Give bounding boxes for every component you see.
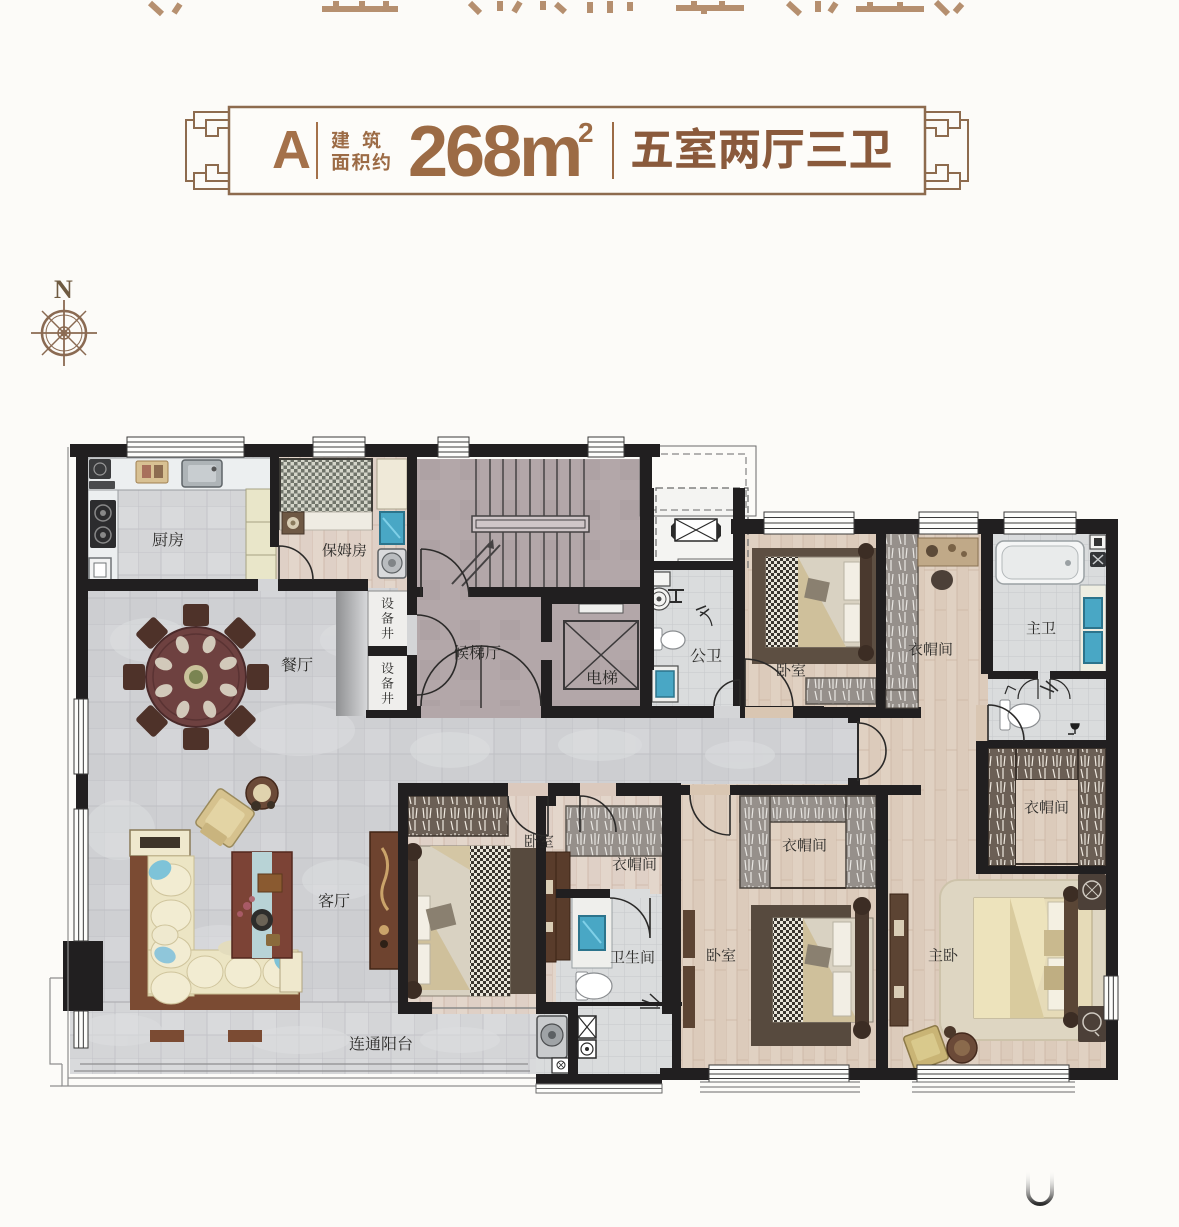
svg-text:A: A xyxy=(272,120,311,180)
svg-text:268m: 268m xyxy=(408,112,580,192)
svg-text:N: N xyxy=(54,275,73,304)
svg-text:2: 2 xyxy=(578,117,594,148)
